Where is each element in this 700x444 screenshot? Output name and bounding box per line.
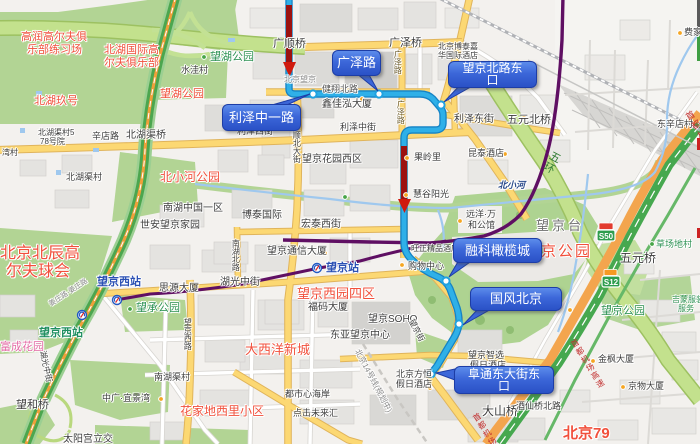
svg-text:S50: S50 [599,232,614,241]
svg-text:S12: S12 [604,278,619,287]
